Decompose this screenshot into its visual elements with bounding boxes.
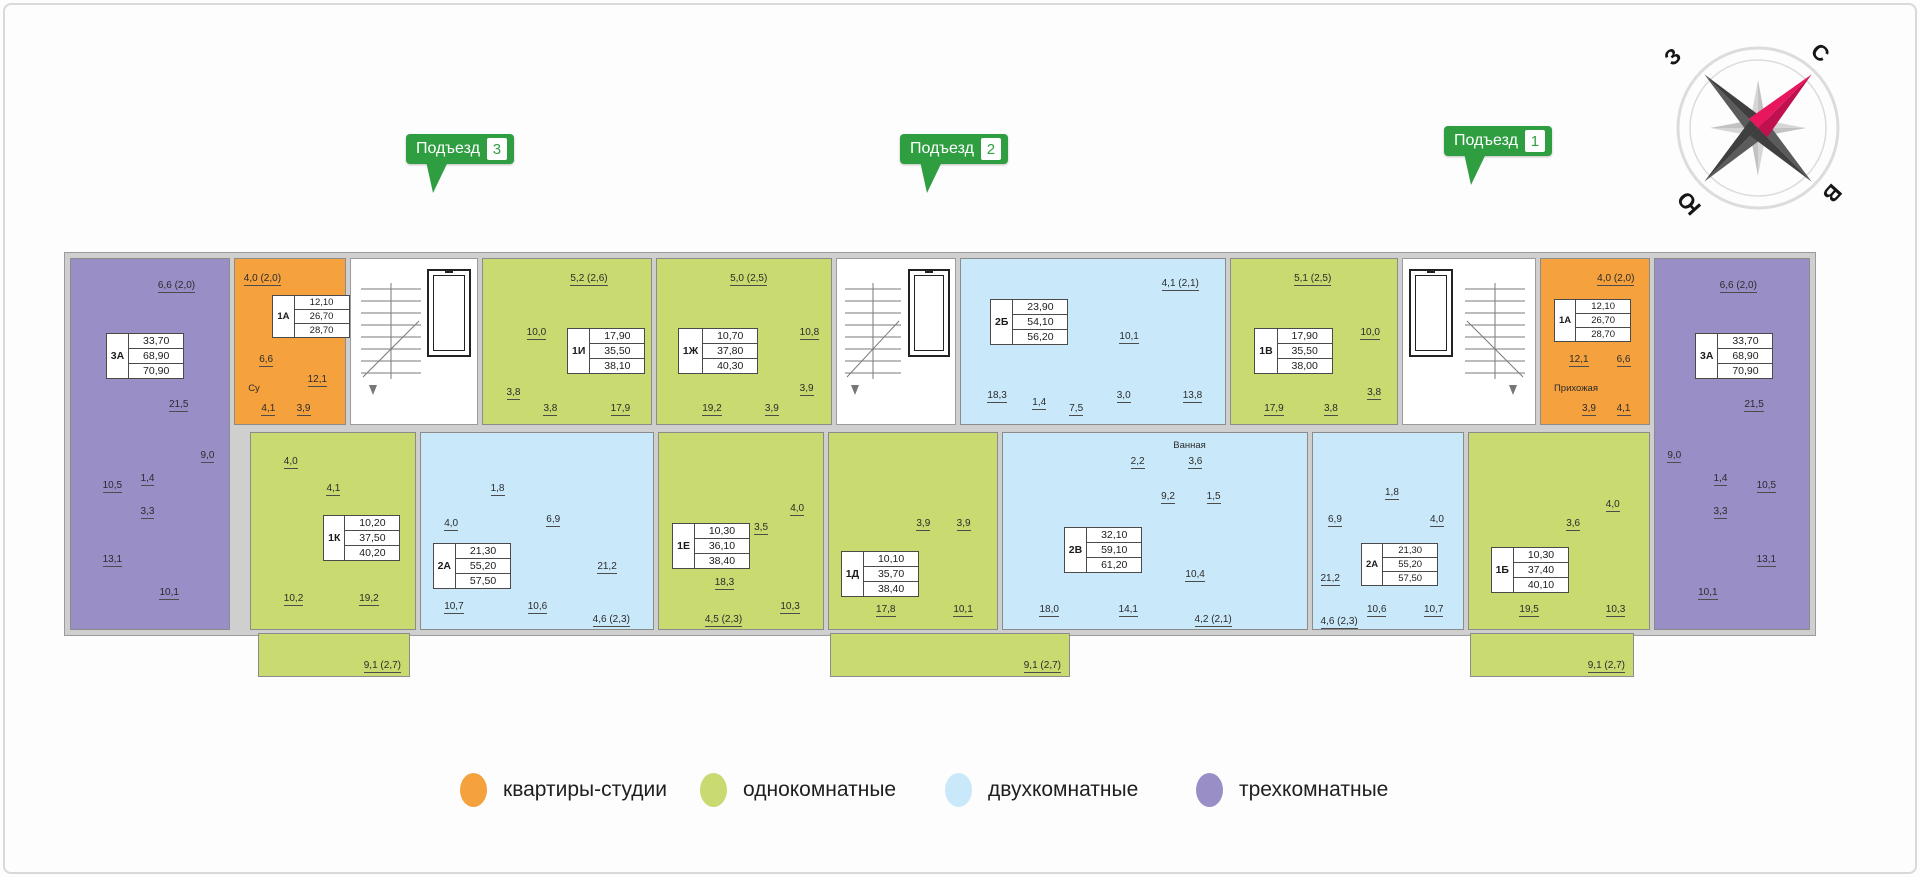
balcony-1b: 9,1 (2,7) (1470, 633, 1634, 677)
entrance-badge-1[interactable]: Подъезд 1 (1444, 126, 1552, 156)
room-area-label: 10,6 (528, 602, 547, 614)
room-area-label: 9,2 (1161, 492, 1175, 504)
apartment-3a-right[interactable]: 6,6 (2,0) 3А 33,70 68,90 70,90 21,5 9,0 … (1654, 258, 1810, 630)
room-area-label: 4,0 (790, 504, 804, 516)
apartment-spec-table: 1К 10,20 37,50 40,20 (323, 515, 400, 561)
apartment-spec-table: 1В 17,90 35,50 38,00 (1254, 328, 1332, 374)
entrance-badge-3-pointer (424, 163, 454, 193)
legend-label: двухкомнатные (988, 778, 1138, 802)
room-area-label: 13,1 (103, 555, 122, 567)
apartment-id: 1А (273, 296, 294, 337)
balcony-area-label: 9,1 (2,7) (1024, 661, 1061, 673)
apartment-id: 1Д (842, 552, 864, 596)
living-area: 10,70 (703, 329, 757, 344)
room-area-label: 21,5 (169, 400, 188, 412)
apartment-area: 37,80 (703, 344, 757, 359)
stairwell-3 (350, 258, 478, 425)
total-area: 61,20 (1087, 558, 1141, 572)
room-area-label: 17,9 (611, 404, 630, 416)
room-area-label: 19,2 (702, 404, 721, 416)
apartment-id: 3А (1696, 334, 1718, 378)
apartment-spec-table: 2А 21,30 55,20 57,50 (433, 543, 511, 589)
room-area-label: 3,8 (543, 404, 557, 416)
room-area-label: 3,6 (1188, 457, 1202, 469)
total-area: 38,40 (864, 582, 918, 596)
apartment-area: 35,70 (864, 567, 918, 582)
room-area-label: 3,5 (754, 523, 768, 535)
room-area-label: 2,2 (1131, 457, 1145, 469)
total-area: 28,70 (295, 324, 349, 337)
apartment-2a-left[interactable]: 1,8 4,0 6,9 2А 21,30 55,20 57,50 21,2 10… (420, 432, 654, 630)
room-area-label: 3,9 (765, 404, 779, 416)
room-area-label: 6,6 (259, 355, 273, 367)
room-area-label: 3,8 (507, 388, 521, 400)
room-area-label: 3,6 (1566, 519, 1580, 531)
apartment-area: 55,20 (1383, 558, 1437, 572)
apartment-area: 68,90 (1718, 349, 1772, 364)
elevator-icon (427, 269, 471, 357)
total-area: 57,50 (1383, 572, 1437, 585)
apartment-1zh[interactable]: 5,0 (2,5) 10,8 1Ж 10,70 37,80 40,30 3,9 … (656, 258, 832, 425)
two-room-color-dot (945, 773, 972, 807)
balcony-1k: 9,1 (2,7) (258, 633, 410, 677)
room-area-label: 10,1 (1698, 588, 1717, 600)
apartment-spec-table: 1Е 10,30 36,10 38,40 (672, 523, 750, 569)
room-area-label: 18,0 (1039, 605, 1058, 617)
living-area: 10,30 (1514, 548, 1568, 563)
balcony-area-label: 9,1 (2,7) (1588, 661, 1625, 673)
room-area-label: 3,9 (800, 384, 814, 396)
apartment-1d[interactable]: 3,9 3,9 1Д 10,10 35,70 38,40 17,8 10,1 (828, 432, 998, 630)
room-area-label: 4,0 (444, 519, 458, 531)
compass-rose: С В Ю З (1652, 22, 1864, 234)
room-area-label: 4,2 (2,1) (1195, 615, 1232, 627)
apartment-id: 1И (568, 329, 590, 373)
apartment-spec-table: 2А 21,30 55,20 57,50 (1361, 543, 1438, 586)
room-area-label: 3,8 (1367, 388, 1381, 400)
balcony-area-label: 9,1 (2,7) (364, 661, 401, 673)
total-area: 38,10 (590, 359, 644, 373)
apartment-1v[interactable]: 5,1 (2,5) 10,0 1В 17,90 35,50 38,00 3,8 … (1230, 258, 1398, 425)
room-name-label: Ванная (1173, 441, 1206, 451)
apartment-area: 37,50 (345, 531, 399, 546)
room-area-label: 5,0 (2,5) (730, 274, 767, 286)
stairwell-2 (836, 258, 956, 425)
living-area: 32,10 (1087, 528, 1141, 543)
room-area-label: 4,6 (2,3) (593, 615, 630, 627)
apartment-id: 2Б (991, 300, 1013, 344)
room-area-label: 12,1 (1569, 355, 1588, 367)
room-area-label: 10,4 (1185, 570, 1204, 582)
room-area-label: 10,0 (1360, 328, 1379, 340)
elevator-icon (1409, 269, 1453, 357)
living-area: 17,90 (590, 329, 644, 344)
apartment-1i[interactable]: 5,2 (2,6) 10,0 1И 17,90 35,50 38,10 3,8 … (482, 258, 652, 425)
living-area: 17,90 (1278, 329, 1332, 344)
stairs-icon (359, 281, 423, 401)
room-area-label: 18,3 (715, 578, 734, 590)
apartment-spec-table: 1Ж 10,70 37,80 40,30 (678, 328, 758, 374)
apartment-id: 1Б (1492, 548, 1514, 592)
room-area-label: 13,8 (1183, 391, 1202, 403)
living-area: 21,30 (456, 544, 510, 559)
room-area-label: 10,5 (103, 481, 122, 493)
apartment-area: 35,50 (1278, 344, 1332, 359)
living-area: 10,30 (695, 524, 749, 539)
studio-color-dot (460, 773, 487, 807)
apartment-id: 2В (1065, 528, 1087, 572)
legend-label: однокомнатные (743, 778, 896, 802)
stairs-icon (843, 281, 903, 401)
apartment-spec-table: 1И 17,90 35,50 38,10 (567, 328, 645, 374)
room-area-label: 3,9 (1582, 404, 1596, 416)
apartment-spec-table: 1Б 10,30 37,40 40,10 (1491, 547, 1569, 593)
room-area-label: 4,1 (261, 404, 275, 416)
apartment-1b[interactable]: 4,0 3,6 1Б 10,30 37,40 40,10 19,5 10,3 (1468, 432, 1650, 630)
apartment-1k[interactable]: 4,0 4,1 1К 10,20 37,50 40,20 10,2 19,2 (250, 432, 416, 630)
living-area: 33,70 (129, 334, 183, 349)
room-area-label: 6,6 (1617, 355, 1631, 367)
room-area-label: 1,8 (1385, 488, 1399, 500)
room-area-label: 4,0 (1606, 500, 1620, 512)
balcony-1d: 9,1 (2,7) (830, 633, 1070, 677)
apartment-id: 2А (434, 544, 456, 588)
room-area-label: 6,6 (2,0) (1720, 281, 1757, 293)
apartment-id: 1К (324, 516, 345, 560)
room-area-label: 4,0 (2,0) (244, 274, 281, 286)
apartment-2v[interactable]: Ванная 2,2 3,6 9,2 1,5 2В 32,10 59,10 61… (1002, 432, 1308, 630)
room-area-label: 1,4 (1032, 398, 1046, 410)
legend-item-studio: квартиры-студии (460, 772, 667, 808)
room-area-label: 6,9 (546, 515, 560, 527)
room-area-label: 4,0 (284, 457, 298, 469)
total-area: 70,90 (129, 364, 183, 378)
apartment-spec-table: 2Б 23,90 54,10 56,20 (990, 299, 1068, 345)
stairs-icon (1463, 281, 1527, 401)
room-area-label: 3,9 (297, 404, 311, 416)
total-area: 38,40 (695, 554, 749, 568)
apartment-spec-table: 3А 33,70 68,90 70,90 (1695, 333, 1773, 379)
apartment-spec-table: 1А 12,10 26,70 28,70 (1554, 299, 1631, 342)
room-area-label: 1,4 (141, 474, 155, 486)
room-area-label: 10,5 (1757, 481, 1776, 493)
apartment-1a-left[interactable]: 4,0 (2,0) 1А 12,10 26,70 28,70 6,6 12,1 … (234, 258, 346, 425)
legend-label: квартиры-студии (503, 778, 667, 802)
room-area-label: 10,7 (1424, 605, 1443, 617)
apartment-id: 1В (1255, 329, 1277, 373)
entrance-badge-2[interactable]: Подъезд 2 (900, 134, 1008, 164)
apartment-area: 59,10 (1087, 543, 1141, 558)
living-area: 10,10 (864, 552, 918, 567)
living-area: 23,90 (1013, 300, 1067, 315)
apartment-area: 68,90 (129, 349, 183, 364)
room-area-label: 10,2 (284, 594, 303, 606)
room-area-label: 6,6 (2,0) (158, 281, 195, 293)
room-area-label: 10,1 (1119, 332, 1138, 344)
three-room-color-dot (1196, 773, 1223, 807)
total-area: 40,10 (1514, 578, 1568, 592)
room-area-label: 3,9 (916, 519, 930, 531)
room-area-label: 21,5 (1744, 400, 1763, 412)
apartment-2b[interactable]: 4,1 (2,1) 2Б 23,90 54,10 56,20 10,1 13,8… (960, 258, 1226, 425)
room-area-label: 1,5 (1207, 492, 1221, 504)
apartment-1e[interactable]: 4,0 3,5 1Е 10,30 36,10 38,40 18,3 10,3 4… (658, 432, 824, 630)
apartment-spec-table: 2В 32,10 59,10 61,20 (1064, 527, 1142, 573)
entrance-badge-2-pointer (918, 163, 948, 193)
room-area-label: 4,0 (2,0) (1597, 274, 1634, 286)
apartment-spec-table: 3А 33,70 68,90 70,90 (106, 333, 184, 379)
room-area-label: 3,3 (141, 507, 155, 519)
room-area-label: 4,1 (1617, 404, 1631, 416)
legend-item-two-room: двухкомнатные (945, 772, 1138, 808)
room-area-label: 10,7 (444, 602, 463, 614)
living-area: 12,10 (295, 296, 349, 310)
apartment-area: 35,50 (590, 344, 644, 359)
living-area: 10,20 (345, 516, 399, 531)
total-area: 70,90 (1718, 364, 1772, 378)
apartment-area: 26,70 (1576, 314, 1630, 328)
room-area-label: 13,1 (1757, 555, 1776, 567)
entrance-badge-3[interactable]: Подъезд 3 (406, 134, 514, 164)
room-area-label: 1,4 (1714, 474, 1728, 486)
apartment-spec-table: 1Д 10,10 35,70 38,40 (841, 551, 919, 597)
room-area-label: 10,1 (159, 588, 178, 600)
apartment-spec-table: 1А 12,10 26,70 28,70 (272, 295, 349, 338)
room-area-label: 19,5 (1519, 605, 1538, 617)
living-area: 33,70 (1718, 334, 1772, 349)
apartment-id: 2А (1362, 544, 1383, 585)
room-area-label: 21,2 (1321, 574, 1340, 586)
room-area-label: 10,6 (1367, 605, 1386, 617)
living-area: 21,30 (1383, 544, 1437, 558)
room-area-label: 4,5 (2,3) (705, 615, 742, 627)
apartment-id: 3А (107, 334, 129, 378)
room-area-label: 17,9 (1264, 404, 1283, 416)
room-area-label: 10,0 (527, 328, 546, 340)
room-area-label: 3,9 (957, 519, 971, 531)
room-name-label: Прихожая (1554, 384, 1598, 394)
stairwell-1 (1402, 258, 1536, 425)
room-area-label: 9,0 (201, 451, 215, 463)
apartment-area: 36,10 (695, 539, 749, 554)
total-area: 57,50 (456, 574, 510, 588)
entrance-badge-1-pointer (1462, 155, 1492, 185)
room-area-label: 10,3 (1606, 605, 1625, 617)
room-area-label: 4,1 (326, 484, 340, 496)
total-area: 28,70 (1576, 328, 1630, 341)
apartment-id: 1А (1555, 300, 1576, 341)
room-area-label: 4,6 (2,3) (1321, 617, 1358, 629)
floor-plan-page: Подъезд 3 Подъезд 2 Подъезд 1 (0, 0, 1920, 877)
apartment-area: 54,10 (1013, 315, 1067, 330)
room-area-label: 17,8 (876, 605, 895, 617)
entrance-number: 1 (1525, 130, 1545, 152)
room-area-label: 14,1 (1119, 605, 1138, 617)
total-area: 38,00 (1278, 359, 1332, 373)
apartment-area: 26,70 (295, 310, 349, 324)
room-area-label: 5,2 (2,6) (570, 274, 607, 286)
room-area-label: 3,0 (1117, 391, 1131, 403)
apartment-id: 1Е (673, 524, 695, 568)
apartment-area: 37,40 (1514, 563, 1568, 578)
total-area: 40,30 (703, 359, 757, 373)
entrance-label: Подъезд (910, 140, 974, 158)
room-name-label: Су (248, 384, 260, 394)
entrance-label: Подъезд (416, 140, 480, 158)
entrance-number: 3 (487, 138, 507, 160)
total-area: 56,20 (1013, 330, 1067, 344)
room-area-label: 10,1 (953, 605, 972, 617)
total-area: 40,20 (345, 546, 399, 560)
room-area-label: 4,1 (2,1) (1162, 279, 1199, 291)
apartment-1a-right[interactable]: 4,0 (2,0) 1А 12,10 26,70 28,70 12,1 6,6 … (1540, 258, 1650, 425)
room-area-label: 9,0 (1667, 451, 1681, 463)
elevator-icon (908, 269, 950, 357)
room-area-label: 1,8 (491, 484, 505, 496)
apartment-2a-right[interactable]: 1,8 6,9 4,0 2А 21,30 55,20 57,50 21,2 10… (1312, 432, 1464, 630)
room-area-label: 10,8 (800, 328, 819, 340)
apartment-area: 55,20 (456, 559, 510, 574)
room-area-label: 3,3 (1714, 507, 1728, 519)
room-area-label: 18,3 (987, 391, 1006, 403)
room-area-label: 10,3 (780, 602, 799, 614)
room-area-label: 7,5 (1069, 404, 1083, 416)
room-area-label: 5,1 (2,5) (1294, 274, 1331, 286)
legend-label: трехкомнатные (1239, 778, 1388, 802)
one-room-color-dot (700, 773, 727, 807)
room-area-label: 12,1 (308, 375, 327, 387)
room-area-label: 21,2 (597, 562, 616, 574)
living-area: 12,10 (1576, 300, 1630, 314)
legend-item-one-room: однокомнатные (700, 772, 896, 808)
room-area-label: 19,2 (359, 594, 378, 606)
room-area-label: 3,8 (1324, 404, 1338, 416)
apartment-id: 1Ж (679, 329, 703, 373)
room-area-label: 6,9 (1328, 515, 1342, 527)
legend-item-three-room: трехкомнатные (1196, 772, 1388, 808)
entrance-number: 2 (981, 138, 1001, 160)
entrance-label: Подъезд (1454, 132, 1518, 150)
apartment-3a-left[interactable]: 6,6 (2,0) 3А 33,70 68,90 70,90 21,5 9,0 … (70, 258, 230, 630)
room-area-label: 4,0 (1430, 515, 1444, 527)
